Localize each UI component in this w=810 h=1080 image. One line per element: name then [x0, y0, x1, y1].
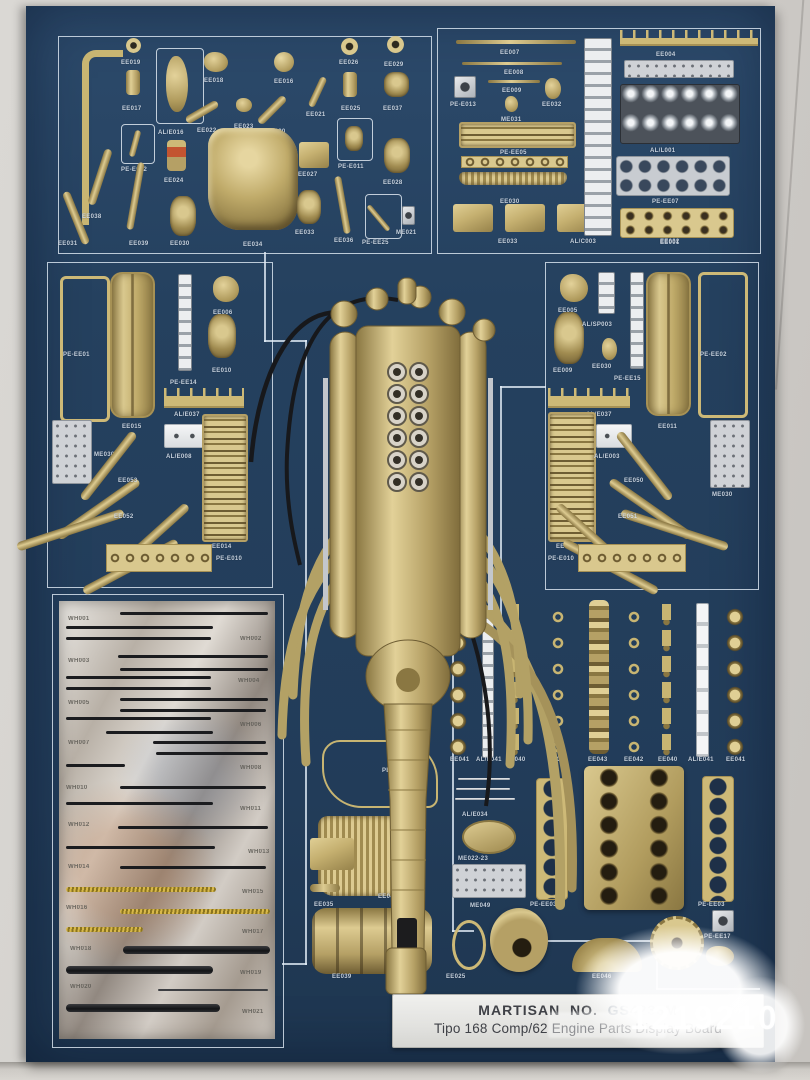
watermark-number: 1219210	[630, 999, 779, 1037]
display-board: EE019EE018AL/E016EE016EE026EE029EE017EE0…	[26, 6, 775, 1062]
photo-stage: EE019EE018AL/E016EE016EE026EE029EE017EE0…	[0, 0, 810, 1080]
engine-block	[323, 278, 495, 656]
engine-assembly	[0, 0, 810, 1080]
gearbox	[366, 640, 450, 1018]
